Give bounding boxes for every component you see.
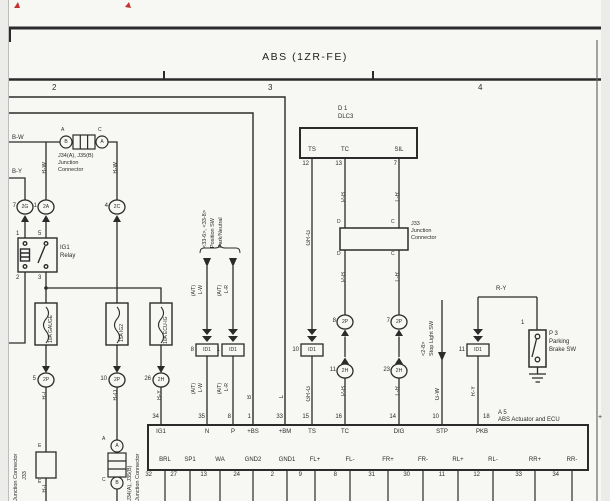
connector-26-2h-label: 2H xyxy=(153,378,169,384)
wiring-diagram-page: ABS (1ZR-FE) 2 3 4 + B-W B-Y A C B A J34… xyxy=(0,0,610,501)
wire-label-bw: B-W xyxy=(12,135,24,142)
j33-bot-name-2: Junction Connector xyxy=(13,428,20,501)
ecu-terminal: IG1 xyxy=(149,429,173,436)
wire-label-rl-bottom: R-L xyxy=(42,483,49,493)
j33-mid-name-1: J33 xyxy=(411,221,420,228)
jc-bot-pin-a: A xyxy=(114,444,120,450)
connector-23-2h-number: 23 xyxy=(378,367,390,374)
jc-top-pin-left: B xyxy=(63,140,69,146)
stop-light-ref: <2-8> xyxy=(421,296,428,356)
j33-mid-box xyxy=(340,228,408,250)
pnp-arrow-icons xyxy=(203,258,237,267)
connector-5-2p-number: 5 xyxy=(26,376,36,383)
dlc3-terminal-sil: SIL xyxy=(389,147,409,154)
connector-2c-number: 4 xyxy=(98,203,108,210)
ecu-pin-num: 15 xyxy=(298,414,309,421)
j33-mid-name-2: Junction xyxy=(411,228,432,235)
ecu-terminal: GND1 xyxy=(273,457,301,464)
parking-brake-id: P 3 xyxy=(549,331,558,338)
dlc3-id: D 1 xyxy=(338,106,347,113)
id1-number-1: 1 xyxy=(208,347,220,354)
id1-number-10: 10 xyxy=(287,347,299,354)
connector-8-2p-label: 2P xyxy=(337,320,353,326)
ecu-pin-num: 14 xyxy=(385,414,396,421)
relay-pin-3: 3 xyxy=(38,275,41,282)
relay-pin-1: 1 xyxy=(16,231,19,238)
ecu-terminal: RR- xyxy=(558,457,586,464)
wire-label-at-2: (A/T) xyxy=(218,285,224,296)
id1-number-11: 11 xyxy=(453,347,465,354)
wire-label-grg-lower: GR-G xyxy=(306,386,313,402)
ecu-terminal: FL- xyxy=(336,457,364,464)
ecu-terminal: N xyxy=(195,429,219,436)
relay-name-1: IG1 xyxy=(60,245,70,252)
fuse-gauge-label: 10A GAUGE xyxy=(49,305,55,343)
wire-label-lr-lower: L-R xyxy=(395,386,402,396)
wire-label-by-vert: B-Y xyxy=(157,390,164,400)
parking-brake-name-2: Brake SW xyxy=(549,347,576,354)
red-pen-marks xyxy=(14,2,131,8)
ecu-pin-num: 34 xyxy=(548,472,559,479)
parking-brake-pin-1: 1 xyxy=(521,320,524,327)
ecu-terminal: RL+ xyxy=(444,457,472,464)
connector-8-2p-number: 8 xyxy=(326,318,336,325)
ecu-terminal: +BS xyxy=(241,429,265,436)
ecu-pin-num: 31 xyxy=(364,472,375,479)
wire-label-lw-upper: L-W xyxy=(199,285,205,294)
ecu-pin-num: 34 xyxy=(148,414,159,421)
ecu-terminal: RL- xyxy=(479,457,507,464)
j33-pin-c-top: C xyxy=(391,220,395,226)
junction-dot xyxy=(44,286,48,290)
connector-7-2p-label: 2P xyxy=(391,320,407,326)
relay-symbol xyxy=(18,238,57,272)
grid-plus-mark: + xyxy=(598,414,602,422)
parking-brake-circuit xyxy=(478,297,546,425)
ecu-terminal: PKB xyxy=(470,429,494,436)
wire-label-lr-mid: L-R xyxy=(395,272,402,282)
ecu-terminal: WA xyxy=(206,457,234,464)
page-left-margin xyxy=(0,0,9,501)
connector-10-2p-label: 2P xyxy=(109,378,125,384)
ecu-terminal: TS xyxy=(300,429,324,436)
ecu-terminal: TC xyxy=(333,429,357,436)
pnp-label-1: Park/Neutral xyxy=(218,176,225,248)
fuse-ig2-label: 15A IG2 xyxy=(120,306,126,342)
ecu-pin-num: 16 xyxy=(331,414,342,421)
connector-5-2p-label: 2P xyxy=(38,378,54,384)
ecu-terminal: +BM xyxy=(273,429,297,436)
wire-label-pb-upper: P-B xyxy=(341,192,348,202)
ecu-terminal: DIG xyxy=(387,429,411,436)
ecu-terminal: GND2 xyxy=(239,457,267,464)
connector-2c-label: 2C xyxy=(109,205,125,211)
jc-top-outer-left: A xyxy=(61,128,64,134)
ecu-pin-num: 30 xyxy=(399,472,410,479)
j33-pin-d-top: D xyxy=(337,220,341,226)
ecu-pin-num: 11 xyxy=(434,472,445,479)
ecu-pin-num: 8 xyxy=(220,414,231,421)
diagram-title: ABS (1ZR-FE) xyxy=(0,51,610,63)
dlc3-terminal-ts: TS xyxy=(302,147,322,154)
connector-23-2h-label: 2H xyxy=(391,369,407,375)
ecu-terminal: FR- xyxy=(409,457,437,464)
jc-bot-name-2: Junction Connector xyxy=(135,428,142,501)
wire-label-lw-lower: L-W xyxy=(199,383,205,392)
jc-bot-name-1: J34(A), J35(B) xyxy=(127,428,134,501)
pnp-label-2: Position SW xyxy=(210,176,217,248)
stop-light-label: Stop Light SW xyxy=(429,296,436,356)
ecu-pin-num: 2 xyxy=(263,472,274,479)
id1-number-8: 8 xyxy=(182,347,194,354)
ecu-pin-num: 27 xyxy=(166,472,177,479)
connector-7-2p-number: 7 xyxy=(380,318,390,325)
connector-10-2p-number: 10 xyxy=(95,376,107,383)
page-right-margin xyxy=(601,0,610,501)
wire-label-ry-horiz: R-Y xyxy=(496,286,506,293)
id1-box-label-1: ID1 xyxy=(301,348,323,354)
jc-bot-outer-a: A xyxy=(102,437,105,443)
j33-bottom-box xyxy=(36,452,56,478)
wire-label-bo: B-O xyxy=(113,390,120,401)
jc-top-name-1: J34(A), J35(B) xyxy=(58,153,93,160)
wire-label-l-bus: L xyxy=(279,395,286,398)
id1-box-label-4: ID1 xyxy=(467,348,489,354)
ecu-terminal: STP xyxy=(430,429,454,436)
wire-label-at-4: (A/T) xyxy=(218,383,224,394)
relay-pin-2: 2 xyxy=(16,275,19,282)
ecu-pin-num: 33 xyxy=(511,472,522,479)
wire-label-pb-lower: P-B xyxy=(341,386,348,396)
ecu-name: ABS Actuator and ECU xyxy=(498,417,560,424)
wire-label-gw: G-W xyxy=(435,388,442,400)
ecu-pin-num: 35 xyxy=(194,414,205,421)
wire-label-at-3: (A/T) xyxy=(192,383,198,394)
wire-label-by: B-Y xyxy=(12,169,22,176)
wiring-lines xyxy=(0,0,610,501)
j33-pin-c-bot: C xyxy=(391,252,395,258)
wire-label-lrat-upper: L-R xyxy=(225,285,231,293)
j33-bot-pin-e-bot: E xyxy=(38,480,41,486)
ecu-pin-num: 24 xyxy=(229,472,240,479)
ecu-pin-num: 9 xyxy=(291,472,302,479)
middle-wires xyxy=(312,158,399,425)
connector-11-2h-label: 2H xyxy=(337,369,353,375)
wire-label-at-1: (A/T) xyxy=(192,285,198,296)
grid-number-4: 4 xyxy=(478,83,482,92)
dlc3-pin-13: 13 xyxy=(331,161,342,168)
wire-label-grg-upper: GR-G xyxy=(306,230,313,246)
jc-top-outer-right: C xyxy=(98,128,102,134)
ecu-terminal: BRL xyxy=(151,457,179,464)
stop-light-arrow-icon xyxy=(438,352,446,361)
wire-label-lrat-lower: L-R xyxy=(225,383,231,391)
pnp-wires xyxy=(200,244,240,425)
ecu-terminal: RR+ xyxy=(521,457,549,464)
ecu-pin-num: 8 xyxy=(326,472,337,479)
jc-top-pin-right: A xyxy=(99,140,105,146)
wire-label-bw-vert-left: B-W xyxy=(42,162,49,174)
dlc3-terminal-tc: TC xyxy=(335,147,355,154)
ecu-pin-num: 1 xyxy=(240,414,251,421)
grid-number-2: 2 xyxy=(52,83,56,92)
ecu-terminal: FL+ xyxy=(301,457,329,464)
jc-top-name-2: Junction xyxy=(58,160,79,167)
connector-2a-number: 1 xyxy=(27,203,37,210)
id1-box-label-3: ID1 xyxy=(222,348,244,354)
ecu-pin-num: 32 xyxy=(141,472,152,479)
ecu-terminal: SP1 xyxy=(176,457,204,464)
fuse-symbols xyxy=(35,303,172,345)
ecu-pin-num: 18 xyxy=(483,414,490,421)
dlc3-pin-12: 12 xyxy=(298,161,309,168)
dlc3-pin-7: 7 xyxy=(386,161,397,168)
wire-label-bw-vert-right: B-W xyxy=(113,162,120,174)
pnp-label-3: <33-6>, <33-8> xyxy=(202,176,209,248)
ecu-pin-num: 10 xyxy=(428,414,439,421)
wire-label-rl: R-L xyxy=(42,390,49,400)
fuse-ecuig-label: 10A ECU-IG xyxy=(164,304,170,344)
jc-bot-outer-c: C xyxy=(102,478,106,484)
ecu-id: A 5 xyxy=(498,410,507,417)
wire-label-ry-vert: R-Y xyxy=(471,386,478,396)
connector-11-2h-number: 11 xyxy=(324,367,336,374)
jc-bot-pin-b: B xyxy=(114,481,120,487)
grid-number-3: 3 xyxy=(268,83,272,92)
relay-name-2: Relay xyxy=(60,253,75,260)
j33-bot-pin-e-top: E xyxy=(38,444,41,450)
j33-mid-name-3: Connector xyxy=(411,235,436,242)
wire-label-lr-upper: L-R xyxy=(395,192,402,202)
connector-26-2h-number: 26 xyxy=(139,376,151,383)
ecu-pin-num: 13 xyxy=(196,472,207,479)
relay-pin-5: 5 xyxy=(38,231,41,238)
wire-label-b-bus: B xyxy=(247,395,254,399)
wire-label-pb-mid: P-B xyxy=(341,272,348,282)
j33-bot-name: J33 xyxy=(22,450,29,480)
ecu-terminal: FR+ xyxy=(374,457,402,464)
j33-pin-d-bot: D xyxy=(337,252,341,258)
jc-top-name-3: Connector xyxy=(58,167,83,174)
connector-2g-number: 7 xyxy=(6,203,16,210)
ecu-pin-num: 33 xyxy=(272,414,283,421)
dlc3-name: DLC3 xyxy=(338,114,353,121)
connector-2a-label: 2A xyxy=(38,205,54,211)
ecu-pin-num: 12 xyxy=(469,472,480,479)
parking-brake-name-1: Parking xyxy=(549,339,569,346)
